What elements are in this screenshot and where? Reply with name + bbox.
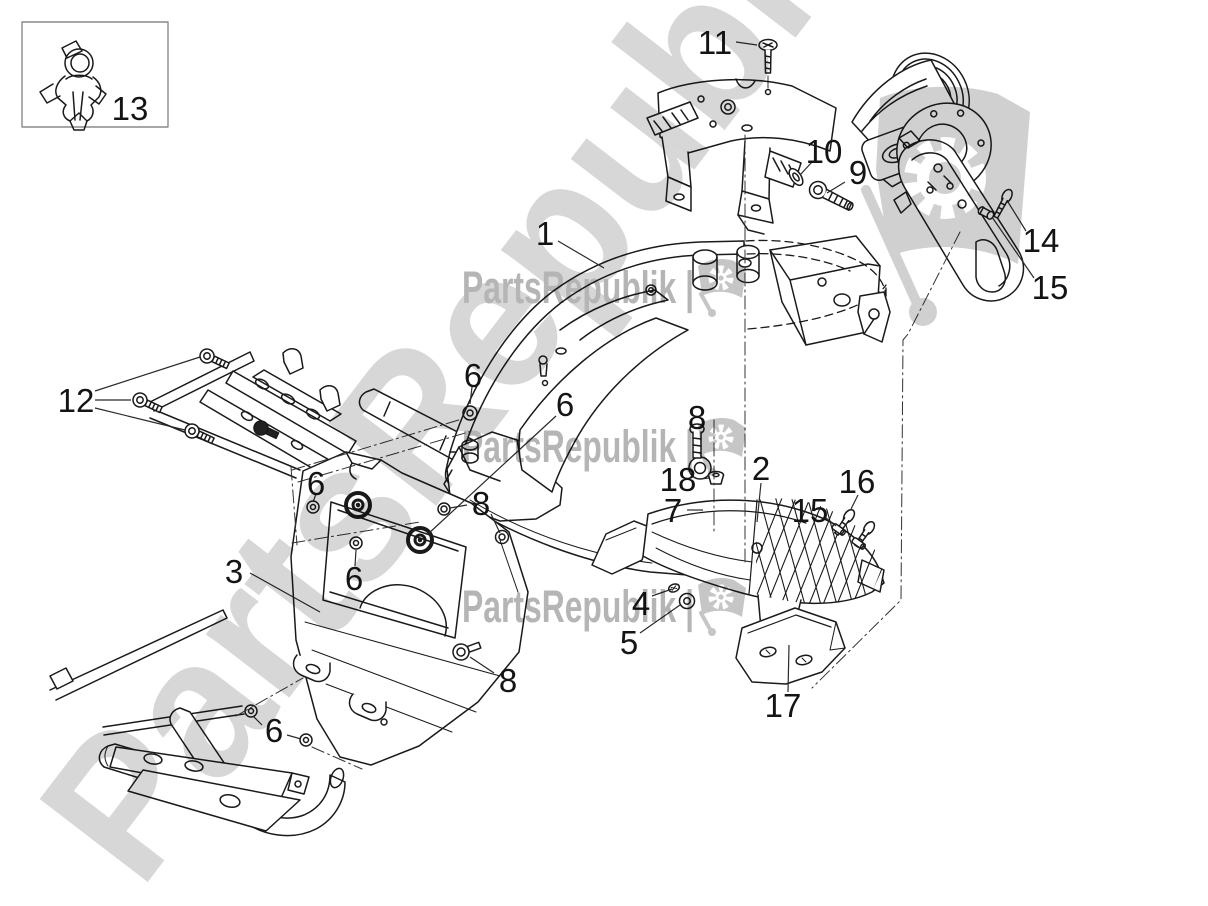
callout-label-16: 16 — [839, 463, 876, 500]
callout-leader-9 — [827, 182, 845, 193]
callout-leader-12 — [95, 357, 200, 391]
callout-label-10: 10 — [806, 133, 843, 170]
callout-label-13: 13 — [112, 90, 149, 127]
callout-label-14: 14 — [1023, 222, 1060, 259]
callout-leader-12 — [95, 408, 185, 430]
callout-label-15: 15 — [792, 492, 829, 529]
watermark-row: PartsRepublik | — [462, 421, 694, 473]
parts-diagram-page: 12345666667888910111213141515161718 Part… — [0, 0, 1208, 906]
watermark-row: PartsRepublik | — [462, 581, 694, 633]
callout-label-12: 12 — [58, 382, 95, 419]
callout-leader-18 — [700, 478, 709, 479]
callout-label-17: 17 — [765, 687, 802, 724]
callout-label-8: 8 — [499, 662, 517, 699]
watermark-row: PartsRepublik | — [462, 262, 694, 314]
row-flag-gear — [698, 578, 746, 636]
callout-label-2: 2 — [752, 450, 770, 487]
row-flag-gear — [698, 259, 746, 317]
callout-label-15: 15 — [1032, 269, 1069, 306]
rear-mudguard-exploded-diagram: 12345666667888910111213141515161718 Part… — [0, 0, 1208, 906]
part-17-mudflap — [736, 608, 845, 684]
